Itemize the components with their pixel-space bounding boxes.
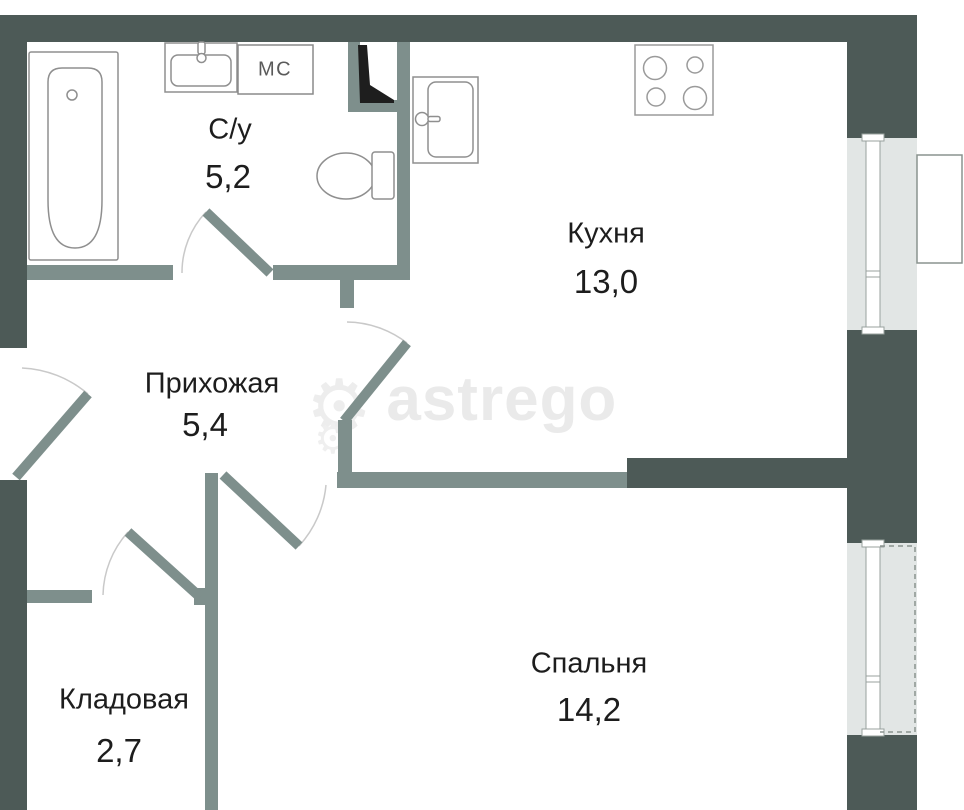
room-area-bedroom: 14,2: [557, 691, 621, 729]
room-area-hallway: 5,4: [182, 406, 228, 444]
room-label-storage: Кладовая: [59, 684, 189, 717]
room-area-kitchen: 13,0: [574, 263, 638, 301]
floor-plan: ⚙ ⚙ astrego: [0, 0, 964, 810]
washing-machine-label: МС: [258, 59, 292, 82]
room-label-bathroom: С/у: [208, 114, 252, 147]
room-label-kitchen: Кухня: [567, 218, 645, 251]
room-label-hallway: Прихожая: [145, 368, 279, 401]
room-area-storage: 2,7: [96, 732, 142, 770]
labels-layer: С/у 5,2 Кухня 13,0 Прихожая 5,4 Кладовая…: [0, 0, 964, 810]
room-label-bedroom: Спальня: [531, 648, 648, 681]
room-area-bathroom: 5,2: [205, 158, 251, 196]
